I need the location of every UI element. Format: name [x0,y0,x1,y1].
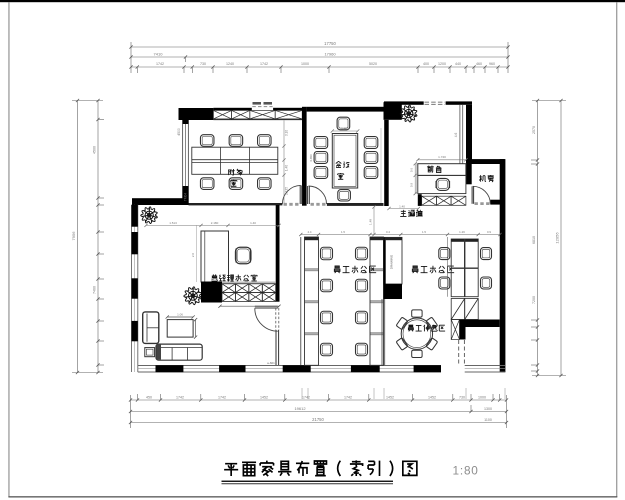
svg-text:3.10: 3.10 [285,130,289,136]
svg-text:7956: 7956 [71,231,76,241]
svg-text:2.0: 2.0 [191,253,195,258]
svg-text:7460: 7460 [93,286,97,294]
svg-text:1.48: 1.48 [369,219,373,225]
svg-text:1742: 1742 [302,395,310,399]
svg-text:17750: 17750 [324,41,336,46]
svg-text:1.40: 1.40 [250,221,256,225]
svg-text:2.180: 2.180 [211,221,219,225]
svg-text:1000: 1000 [301,62,309,66]
svg-text:TM04: TM04 [184,193,188,201]
svg-text:0.9: 0.9 [410,183,414,188]
svg-text:1742: 1742 [260,62,268,66]
svg-text:1742: 1742 [156,62,164,66]
svg-text:1100: 1100 [484,418,492,422]
svg-text:1.740: 1.740 [438,155,446,159]
svg-text:1:80: 1:80 [453,464,479,478]
svg-text:1.5: 1.5 [422,230,426,234]
svg-text:1.40: 1.40 [399,204,405,208]
svg-text:19612: 19612 [294,406,306,411]
svg-text:a-601: a-601 [267,361,275,365]
svg-text:730: 730 [200,62,206,66]
svg-text:7200: 7200 [532,296,536,304]
svg-text:4.4: 4.4 [307,230,311,234]
svg-text:460: 460 [476,62,482,66]
svg-text:2.135: 2.135 [285,187,289,195]
svg-text:2570: 2570 [532,126,536,134]
svg-text:DRAWING: DRAWING [390,254,394,269]
svg-text:1.40: 1.40 [285,165,289,171]
svg-text:1.06: 1.06 [177,312,183,316]
svg-text:17960: 17960 [324,51,336,56]
svg-text:1000: 1000 [478,395,486,399]
svg-text:1452: 1452 [386,395,394,399]
svg-text:1.513: 1.513 [169,221,177,225]
svg-text:450: 450 [146,395,152,399]
svg-text:1240: 1240 [226,62,234,66]
svg-text:1300: 1300 [484,407,492,411]
svg-text:4.6: 4.6 [454,133,458,138]
svg-text:1742: 1742 [218,395,226,399]
svg-text:6810: 6810 [532,236,536,244]
svg-text:1200: 1200 [438,62,446,66]
svg-text:3.650: 3.650 [309,154,313,162]
svg-text:440: 440 [455,62,461,66]
svg-text:1452: 1452 [428,395,436,399]
svg-text:12056: 12056 [555,232,560,244]
svg-text:1742: 1742 [176,395,184,399]
svg-text:4500: 4500 [177,128,181,136]
svg-text:0.9: 0.9 [487,230,491,234]
svg-text:5020: 5020 [369,62,377,66]
svg-text:400: 400 [423,62,429,66]
svg-text:21750: 21750 [312,417,324,422]
svg-text:0.4: 0.4 [386,230,390,234]
svg-text:1742: 1742 [344,395,352,399]
svg-text:730: 730 [459,395,465,399]
svg-text:4500: 4500 [93,146,97,154]
svg-text:1.480: 1.480 [341,126,349,130]
svg-text:7410: 7410 [154,51,164,56]
svg-text:1.26: 1.26 [459,230,465,234]
svg-text:1452: 1452 [260,395,268,399]
svg-text:0.6: 0.6 [410,168,414,173]
svg-text:960: 960 [489,62,495,66]
svg-text:1.5: 1.5 [341,230,345,234]
